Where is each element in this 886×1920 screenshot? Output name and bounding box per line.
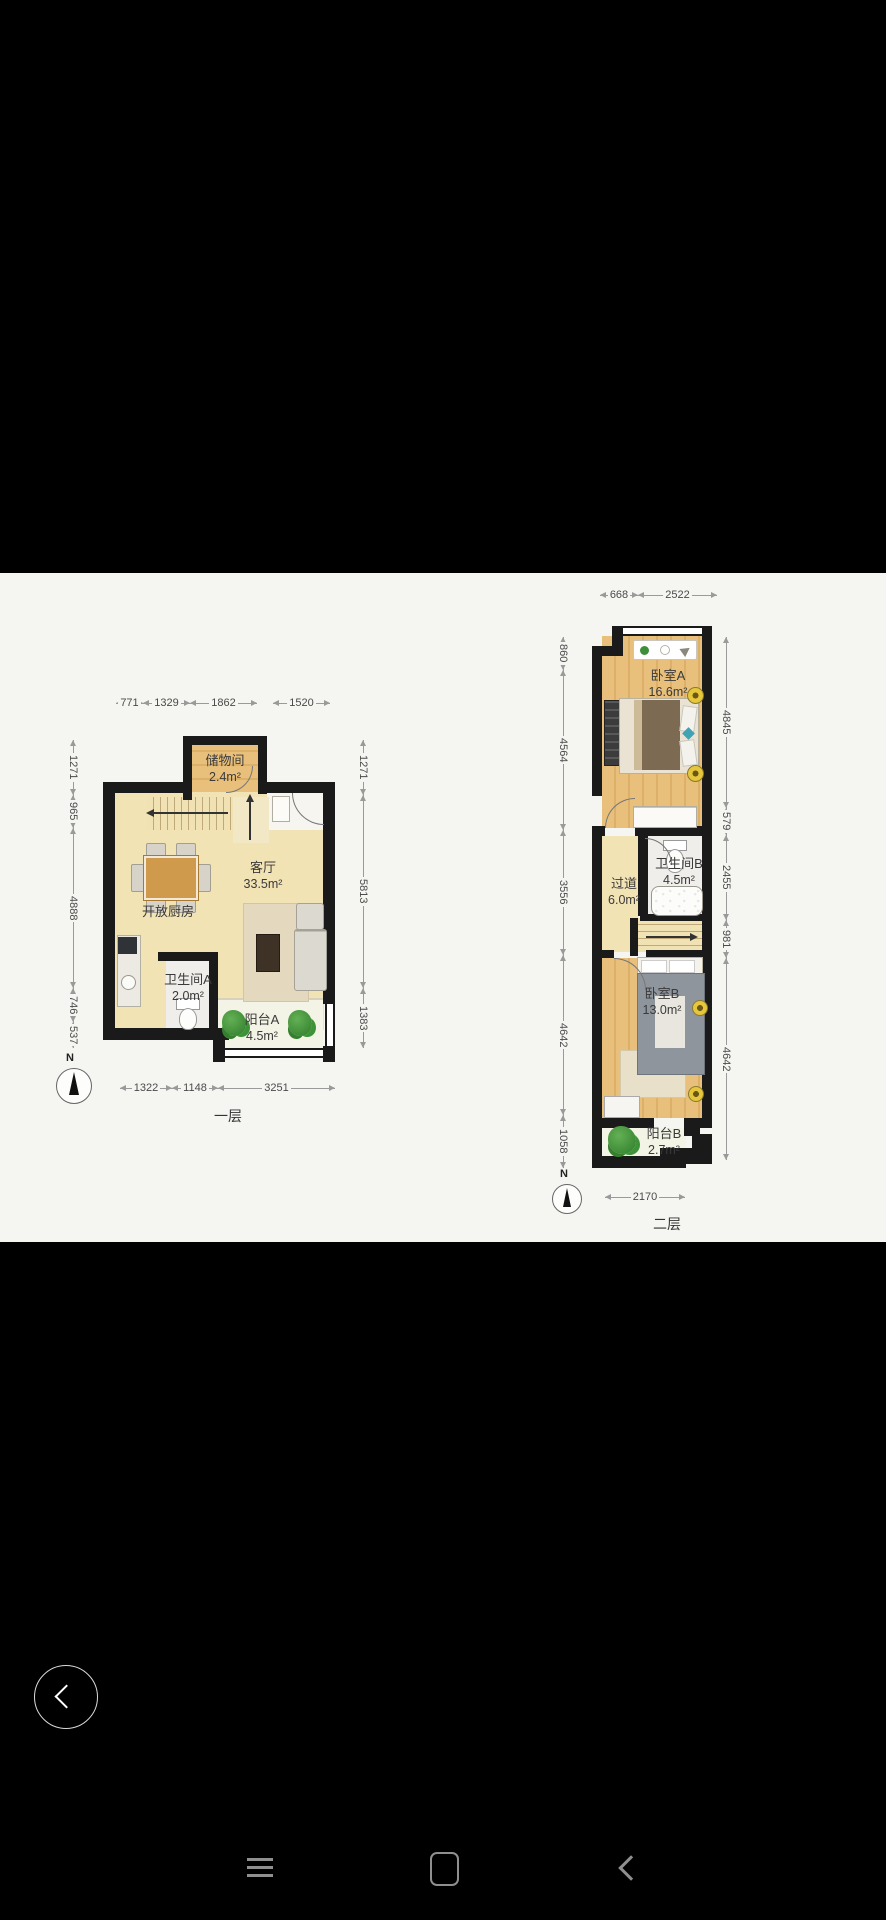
bed-a-blanket — [634, 700, 680, 770]
dimension: 1520 — [273, 697, 330, 709]
dimension: 579 — [720, 808, 732, 835]
room-label-bathroom-a: 卫生间A 2.0m² — [152, 972, 224, 1004]
dimension: 771 — [116, 697, 143, 709]
room-name: 卧室B — [626, 986, 698, 1002]
wall — [213, 1028, 225, 1062]
chevron-left-icon — [54, 1684, 78, 1708]
window — [325, 1004, 335, 1046]
room-name: 开放厨房 — [126, 904, 210, 920]
dimension: 4642 — [557, 955, 569, 1115]
room-name: 过道 — [588, 876, 660, 892]
room-area: 16.6m² — [632, 684, 704, 700]
stair-up-arrow — [249, 800, 251, 840]
room-name: 阳台B — [628, 1126, 700, 1142]
room-area: 2.7m² — [628, 1142, 700, 1158]
compass-north-label: N — [66, 1052, 74, 1064]
dimension: 2170 — [605, 1191, 685, 1203]
entry-fixture — [272, 796, 290, 822]
room-label-bedroom-a: 卧室A 16.6m² — [632, 668, 704, 700]
dimension: 5813 — [357, 795, 369, 988]
dimension: 1862 — [190, 697, 257, 709]
dining-table — [143, 855, 199, 901]
sofa — [294, 929, 327, 991]
room-name: 卧室A — [632, 668, 704, 684]
room-label-balcony-a: 阳台A 4.5m² — [226, 1012, 298, 1044]
nightstand-lamp — [687, 765, 704, 782]
dimension: 4888 — [67, 828, 79, 988]
dimension: 1148 — [172, 1082, 218, 1094]
coffee-table — [256, 934, 280, 972]
dimension: 3251 — [218, 1082, 335, 1094]
pillow — [669, 960, 695, 973]
room-label-kitchen: 开放厨房 — [126, 904, 210, 920]
dimension: 4564 — [557, 670, 569, 830]
staircase — [147, 797, 233, 830]
compass-north-label: N — [560, 1168, 568, 1180]
circle-icon — [660, 645, 670, 655]
room-label-corridor: 过道 6.0m² — [588, 876, 660, 908]
dimension: 4845 — [720, 637, 732, 808]
nav-back-button[interactable] — [618, 1855, 643, 1880]
window — [620, 626, 712, 636]
stair-direction-arrow — [646, 936, 692, 938]
floor-label: 二层 — [622, 1214, 712, 1234]
android-nav-bar — [0, 1840, 886, 1900]
dimension: 2455 — [720, 835, 732, 920]
room-area: 4.5m² — [226, 1028, 298, 1044]
nav-menu-button[interactable] — [234, 1854, 286, 1886]
plant-icon — [640, 646, 649, 655]
kitchen-sink — [121, 975, 136, 990]
room-area: 33.5m² — [227, 876, 299, 892]
wall — [103, 782, 187, 793]
room-label-storage: 储物间 2.4m² — [189, 753, 261, 785]
wall — [103, 782, 115, 1040]
hamburger-icon — [247, 1858, 273, 1861]
room-label-balcony-b: 阳台B 2.7m² — [628, 1126, 700, 1158]
compass-needle — [563, 1188, 571, 1207]
back-button[interactable] — [34, 1665, 98, 1729]
room-area: 13.0m² — [626, 1002, 698, 1018]
dimension: 537 — [67, 1022, 79, 1048]
armchair — [296, 903, 324, 930]
hamburger-icon — [247, 1866, 273, 1869]
dimension: 4642 — [720, 958, 732, 1160]
legend-bar — [633, 640, 697, 660]
dimension: 1271 — [357, 740, 369, 795]
dimension: 668 — [600, 589, 638, 601]
wall — [592, 646, 602, 796]
floor-label: 一层 — [180, 1106, 276, 1126]
compass-needle — [69, 1072, 79, 1095]
compass-icon — [552, 1184, 582, 1214]
dimension: 3556 — [557, 830, 569, 955]
dimension: 2522 — [638, 589, 717, 601]
room-label-living: 客厅 33.5m² — [227, 860, 299, 892]
wall — [592, 950, 614, 958]
pillow — [641, 960, 667, 973]
nightstand-lamp — [688, 1086, 704, 1102]
cabinet — [604, 1096, 640, 1118]
phone-screen: 771 1329 1862 1520 1271 965 4888 746 537… — [0, 0, 886, 1920]
room-name: 卫生间A — [152, 972, 224, 988]
stair-landing — [233, 797, 269, 843]
wall — [323, 1046, 335, 1062]
dimension: 1329 — [143, 697, 190, 709]
room-area: 2.0m² — [152, 988, 224, 1004]
wall — [630, 918, 638, 956]
dimension: 1322 — [120, 1082, 172, 1094]
wall — [592, 826, 605, 836]
room-name: 客厅 — [227, 860, 299, 876]
room-name: 储物间 — [189, 753, 261, 769]
dimension: 981 — [720, 920, 732, 958]
dimension: 1058 — [557, 1115, 569, 1168]
balcony-window — [225, 1048, 323, 1058]
room-name: 卫生间B — [643, 856, 715, 872]
compass-icon — [56, 1068, 92, 1104]
cursor-icon — [679, 643, 692, 656]
hamburger-icon — [247, 1874, 273, 1877]
dimension: 1271 — [67, 740, 79, 795]
dresser — [633, 806, 697, 828]
room-area: 6.0m² — [588, 892, 660, 908]
dining-chair — [197, 864, 211, 892]
cooktop — [118, 937, 137, 954]
room-name: 阳台A — [226, 1012, 298, 1028]
dimension: 860 — [557, 637, 569, 670]
toilet — [179, 1008, 197, 1030]
nav-home-button[interactable] — [430, 1852, 459, 1886]
dimension: 746 — [67, 988, 79, 1022]
dimension: 1383 — [357, 988, 369, 1048]
wall — [183, 736, 267, 745]
room-area: 2.4m² — [189, 769, 261, 785]
stair-direction-arrow — [152, 812, 228, 814]
dimension: 965 — [67, 795, 79, 828]
room-label-bedroom-b: 卧室B 13.0m² — [626, 986, 698, 1018]
